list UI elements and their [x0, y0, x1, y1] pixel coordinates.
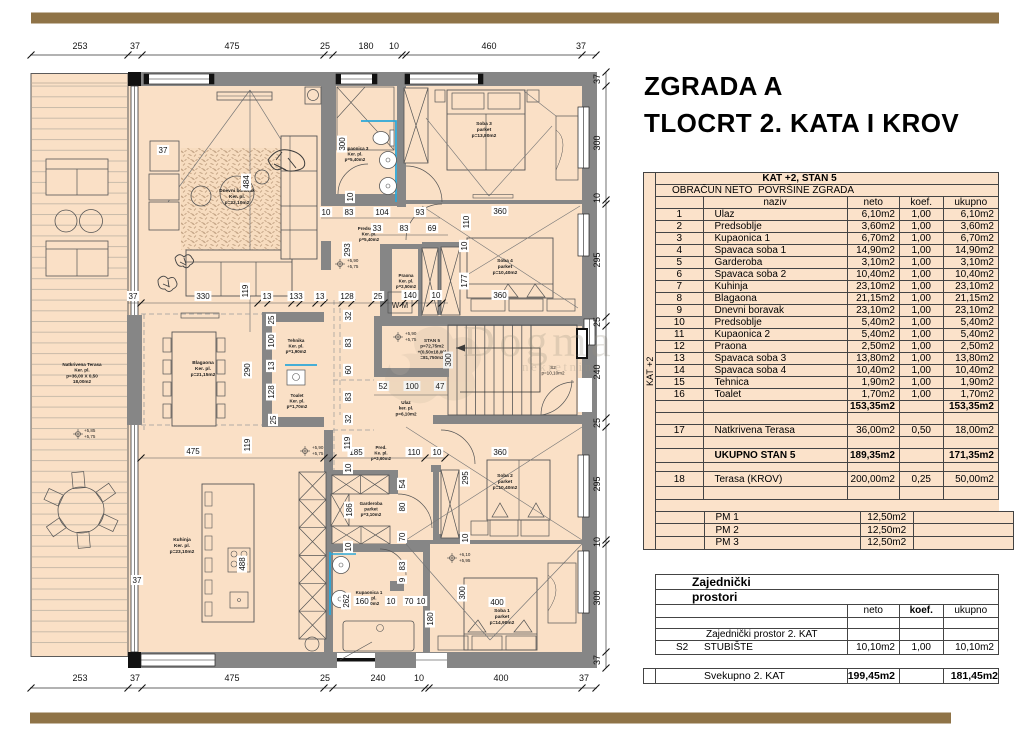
- svg-text:37: 37: [592, 655, 602, 665]
- svg-text:475: 475: [224, 673, 239, 683]
- svg-text:10: 10: [433, 448, 442, 457]
- svg-text:240: 240: [592, 364, 602, 379]
- svg-text:10: 10: [344, 542, 353, 551]
- svg-text:293: 293: [343, 243, 352, 257]
- svg-text:295: 295: [461, 471, 470, 485]
- svg-text:83: 83: [345, 208, 354, 217]
- svg-text:+5,90: +5,90: [347, 258, 359, 263]
- svg-text:10: 10: [432, 291, 441, 300]
- svg-text:400: 400: [493, 673, 508, 683]
- svg-text:119: 119: [241, 284, 250, 297]
- svg-text:25: 25: [269, 415, 278, 424]
- svg-text:400: 400: [490, 598, 504, 607]
- svg-text:70: 70: [398, 532, 407, 541]
- svg-text:10: 10: [344, 463, 353, 472]
- svg-text:+5,85: +5,85: [84, 428, 96, 433]
- svg-text:nekretnine: nekretnine: [522, 359, 602, 374]
- svg-text:10: 10: [592, 193, 602, 203]
- svg-text:300: 300: [592, 590, 602, 605]
- svg-text:475: 475: [224, 41, 239, 51]
- svg-text:119: 119: [343, 436, 352, 449]
- svg-text:37: 37: [576, 41, 586, 51]
- svg-text:300: 300: [338, 137, 347, 151]
- svg-text:119: 119: [243, 438, 252, 451]
- svg-text:128: 128: [340, 292, 354, 301]
- svg-text:10: 10: [417, 597, 426, 606]
- svg-text:110: 110: [408, 448, 421, 457]
- svg-text:253: 253: [72, 41, 87, 51]
- svg-text:83: 83: [400, 224, 409, 233]
- svg-text:37: 37: [129, 292, 138, 301]
- svg-text:10: 10: [461, 533, 470, 542]
- svg-text:13: 13: [316, 292, 325, 301]
- svg-text:69: 69: [428, 224, 437, 233]
- svg-text:488: 488: [238, 557, 247, 571]
- svg-text:140: 140: [403, 291, 417, 300]
- svg-text:+5,75: +5,75: [84, 434, 96, 439]
- svg-text:253: 253: [72, 673, 87, 683]
- svg-text:83: 83: [398, 561, 407, 570]
- svg-text:484: 484: [242, 175, 251, 189]
- svg-text:+5,90: +5,90: [312, 445, 324, 450]
- svg-text:37: 37: [130, 41, 140, 51]
- svg-text:295: 295: [592, 252, 602, 267]
- svg-text:37: 37: [579, 673, 589, 683]
- svg-text:240: 240: [370, 673, 385, 683]
- svg-text:37: 37: [592, 74, 602, 84]
- svg-text:9: 9: [398, 577, 407, 582]
- svg-text:25: 25: [592, 317, 602, 327]
- svg-text:+6,10: +6,10: [459, 552, 471, 557]
- svg-text:32: 32: [344, 311, 353, 320]
- svg-text:360: 360: [493, 207, 507, 216]
- svg-text:10: 10: [387, 597, 396, 606]
- svg-text:360: 360: [493, 448, 507, 457]
- svg-text:37: 37: [159, 146, 168, 155]
- svg-text:60: 60: [344, 365, 353, 374]
- svg-text:100: 100: [267, 334, 276, 348]
- svg-text:104: 104: [375, 208, 389, 217]
- svg-text:54: 54: [398, 479, 407, 488]
- svg-text:10: 10: [460, 241, 469, 250]
- svg-text:10: 10: [346, 192, 355, 201]
- svg-text:33: 33: [373, 224, 382, 233]
- svg-text:360: 360: [493, 291, 507, 300]
- svg-text:180: 180: [426, 612, 435, 626]
- svg-text:460: 460: [481, 41, 496, 51]
- svg-text:70: 70: [405, 597, 414, 606]
- svg-text:25: 25: [592, 418, 602, 428]
- svg-text:83: 83: [344, 392, 353, 401]
- svg-text:37: 37: [130, 673, 140, 683]
- svg-text:186: 186: [345, 503, 354, 517]
- svg-text:93: 93: [416, 208, 425, 217]
- svg-text:13: 13: [263, 292, 272, 301]
- svg-text:80: 80: [398, 502, 407, 511]
- svg-text:+5,75: +5,75: [347, 264, 359, 269]
- svg-text:177: 177: [460, 274, 469, 288]
- svg-text:10: 10: [592, 537, 602, 547]
- svg-text:295: 295: [592, 476, 602, 491]
- svg-text:13: 13: [267, 361, 276, 370]
- svg-text:25: 25: [320, 41, 330, 51]
- svg-text:330: 330: [196, 292, 210, 301]
- svg-text:32: 32: [344, 414, 353, 423]
- svg-text:110: 110: [462, 215, 471, 228]
- svg-text:160: 160: [355, 597, 369, 606]
- svg-text:37: 37: [133, 576, 142, 585]
- svg-text:300: 300: [458, 586, 467, 600]
- svg-text:128: 128: [267, 385, 276, 399]
- svg-text:+5,75: +5,75: [312, 451, 324, 456]
- svg-text:10: 10: [322, 208, 331, 217]
- svg-text:180: 180: [358, 41, 373, 51]
- svg-text:25: 25: [320, 673, 330, 683]
- svg-text:262: 262: [342, 594, 351, 608]
- svg-text:25: 25: [267, 315, 276, 324]
- svg-text:83: 83: [344, 338, 353, 347]
- svg-text:25: 25: [374, 292, 383, 301]
- svg-text:133: 133: [289, 292, 303, 301]
- svg-text:290: 290: [243, 363, 252, 377]
- svg-text:+5,90: +5,90: [405, 331, 417, 336]
- svg-text:10: 10: [414, 673, 424, 683]
- svg-text:300: 300: [592, 135, 602, 150]
- svg-text:+5,95: +5,95: [459, 558, 471, 563]
- svg-text:475: 475: [186, 447, 200, 456]
- svg-text:10: 10: [389, 41, 399, 51]
